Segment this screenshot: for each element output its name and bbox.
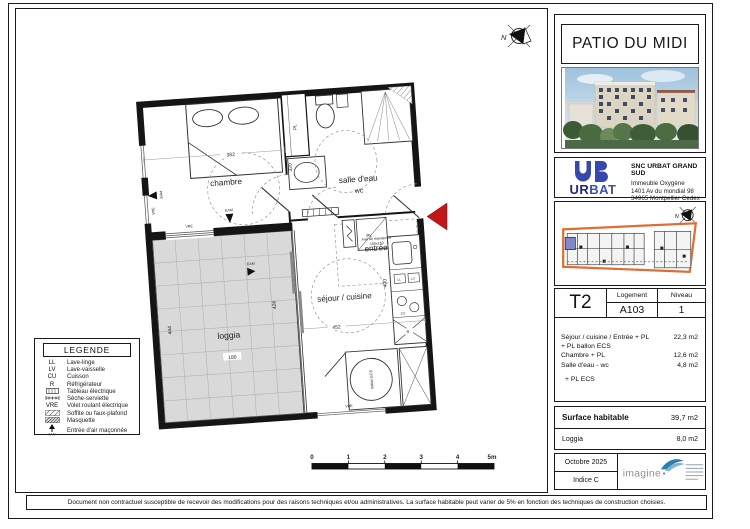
north-compass-icon-small: N — [675, 207, 696, 223]
svg-text:EAM: EAM — [225, 208, 233, 213]
surface-box: Surface habitable 39,7 m2 Loggia 8,0 m2 — [554, 406, 706, 450]
legend-item: LLLave-linge — [37, 359, 137, 366]
surface-row: Surface habitable 39,7 m2 — [555, 407, 705, 429]
svg-text:R: R — [406, 329, 409, 334]
legend-item: Sèche-serviette — [37, 395, 137, 402]
key-plan-box: N — [554, 201, 706, 286]
svg-text:EAM: EAM — [49, 432, 56, 436]
company-address-line: Immeuble Oxygène — [631, 180, 702, 188]
areas-list: Séjour / cuisine / Entrée + PL22,3 m2 + … — [561, 333, 698, 383]
svg-text:400: 400 — [382, 279, 389, 288]
disclaimer-text: Document non contractuel susceptible de … — [68, 499, 666, 506]
svg-text:180: 180 — [228, 355, 237, 362]
loggia-row: Loggia 8,0 m2 — [555, 429, 705, 449]
vre-label: VRE — [185, 224, 193, 229]
legend-item: LVLave-vaisselle — [37, 366, 137, 373]
svg-text:PL: PL — [292, 124, 297, 130]
revision-box: Octobre 2025 Indice C imagine — [554, 453, 706, 490]
architect-logo: imagine — [621, 456, 705, 489]
unit-table-box: T2 Logement Niveau A103 1 Séjour / cuisi… — [554, 288, 706, 402]
vre-label: VRE — [151, 207, 156, 215]
entrance-ar row-icon — [427, 203, 447, 230]
room-label-loggia: loggia — [217, 329, 241, 341]
logement-header: Logement — [607, 289, 658, 303]
bath-shelf — [336, 94, 348, 108]
eam-arrow-icon: EAM — [37, 424, 67, 438]
seche-serviette-icon — [37, 395, 67, 403]
svg-text:EAM: EAM — [247, 262, 255, 267]
company-name: SNC URBAT GRAND SUD — [631, 163, 702, 177]
company-address-line: 1401 Av du mondial 98 — [631, 188, 702, 196]
legend-item: EAM Entrée d'air maçonnée — [37, 425, 137, 437]
area-row: Séjour / cuisine / Entrée + PL22,3 m2 — [561, 333, 698, 342]
svg-text:320: 320 — [287, 163, 294, 172]
svg-text:382: 382 — [226, 152, 235, 159]
disclaimer-bar: Document non contractuel susceptible de … — [26, 495, 707, 510]
svg-text:4: 4 — [456, 454, 460, 461]
svg-text:1: 1 — [347, 454, 351, 461]
tableau-electrique — [342, 220, 356, 248]
area-row: + PL ballon ECS — [561, 342, 698, 351]
bed — [186, 98, 283, 178]
north-compass-icon: N — [501, 25, 531, 47]
svg-text:N: N — [675, 214, 680, 220]
project-title: PATIO DU MIDI — [561, 24, 699, 64]
svg-text:2: 2 — [383, 454, 387, 461]
apartment-plan: PL — [136, 86, 438, 431]
urbat-logo: URBAT — [561, 160, 625, 198]
logement-value: A103 — [607, 303, 658, 318]
unit-type: T2 — [555, 289, 607, 318]
room-label-wc: wc — [354, 187, 365, 195]
title-block: PATIO DU MIDI — [554, 14, 706, 153]
drawing-sheet: N — [0, 0, 750, 529]
loggia-floor — [152, 231, 304, 423]
vre-label: VRE — [345, 404, 353, 409]
washbasin — [288, 156, 327, 190]
niveau-header: Niveau — [658, 289, 705, 303]
svg-text:URBAT: URBAT — [569, 182, 616, 197]
company-box: URBAT SNC URBAT GRAND SUD Immeuble Oxygè… — [554, 157, 706, 198]
area-row: Salle d'eau - wc4,8 m2 — [561, 361, 698, 370]
svg-text:452: 452 — [332, 324, 341, 331]
areas-note: + PL ECS — [561, 376, 698, 383]
site-key-plan: N — [555, 202, 705, 285]
svg-text:3: 3 — [419, 454, 423, 461]
unit-highlight — [565, 237, 575, 249]
scale-bar: 0 1 2 3 4 5m — [310, 454, 497, 469]
svg-text:5m: 5m — [488, 454, 497, 461]
svg-text:LL: LL — [397, 278, 401, 282]
legend-title: LEGENDE — [43, 343, 131, 357]
revision-date: Octobre 2025 — [555, 454, 617, 472]
north-label: N — [501, 33, 507, 42]
svg-text:EAM: EAM — [159, 191, 164, 199]
legend-item: CUCuisson — [37, 374, 137, 381]
svg-text:0: 0 — [310, 454, 314, 461]
project-photo — [561, 67, 699, 149]
niveau-value: 1 — [658, 303, 705, 318]
closet-pl: PL — [281, 93, 309, 157]
architect-name: imagine — [623, 469, 661, 480]
legend-box: LEGENDE LLLave-linge LVLave-vaisselle CU… — [34, 338, 140, 435]
revision-indice: Indice C — [555, 472, 617, 489]
svg-text:426: 426 — [272, 300, 279, 309]
area-row: Chambre + PL12,6 m2 — [561, 351, 698, 360]
svg-text:444: 444 — [167, 326, 174, 335]
